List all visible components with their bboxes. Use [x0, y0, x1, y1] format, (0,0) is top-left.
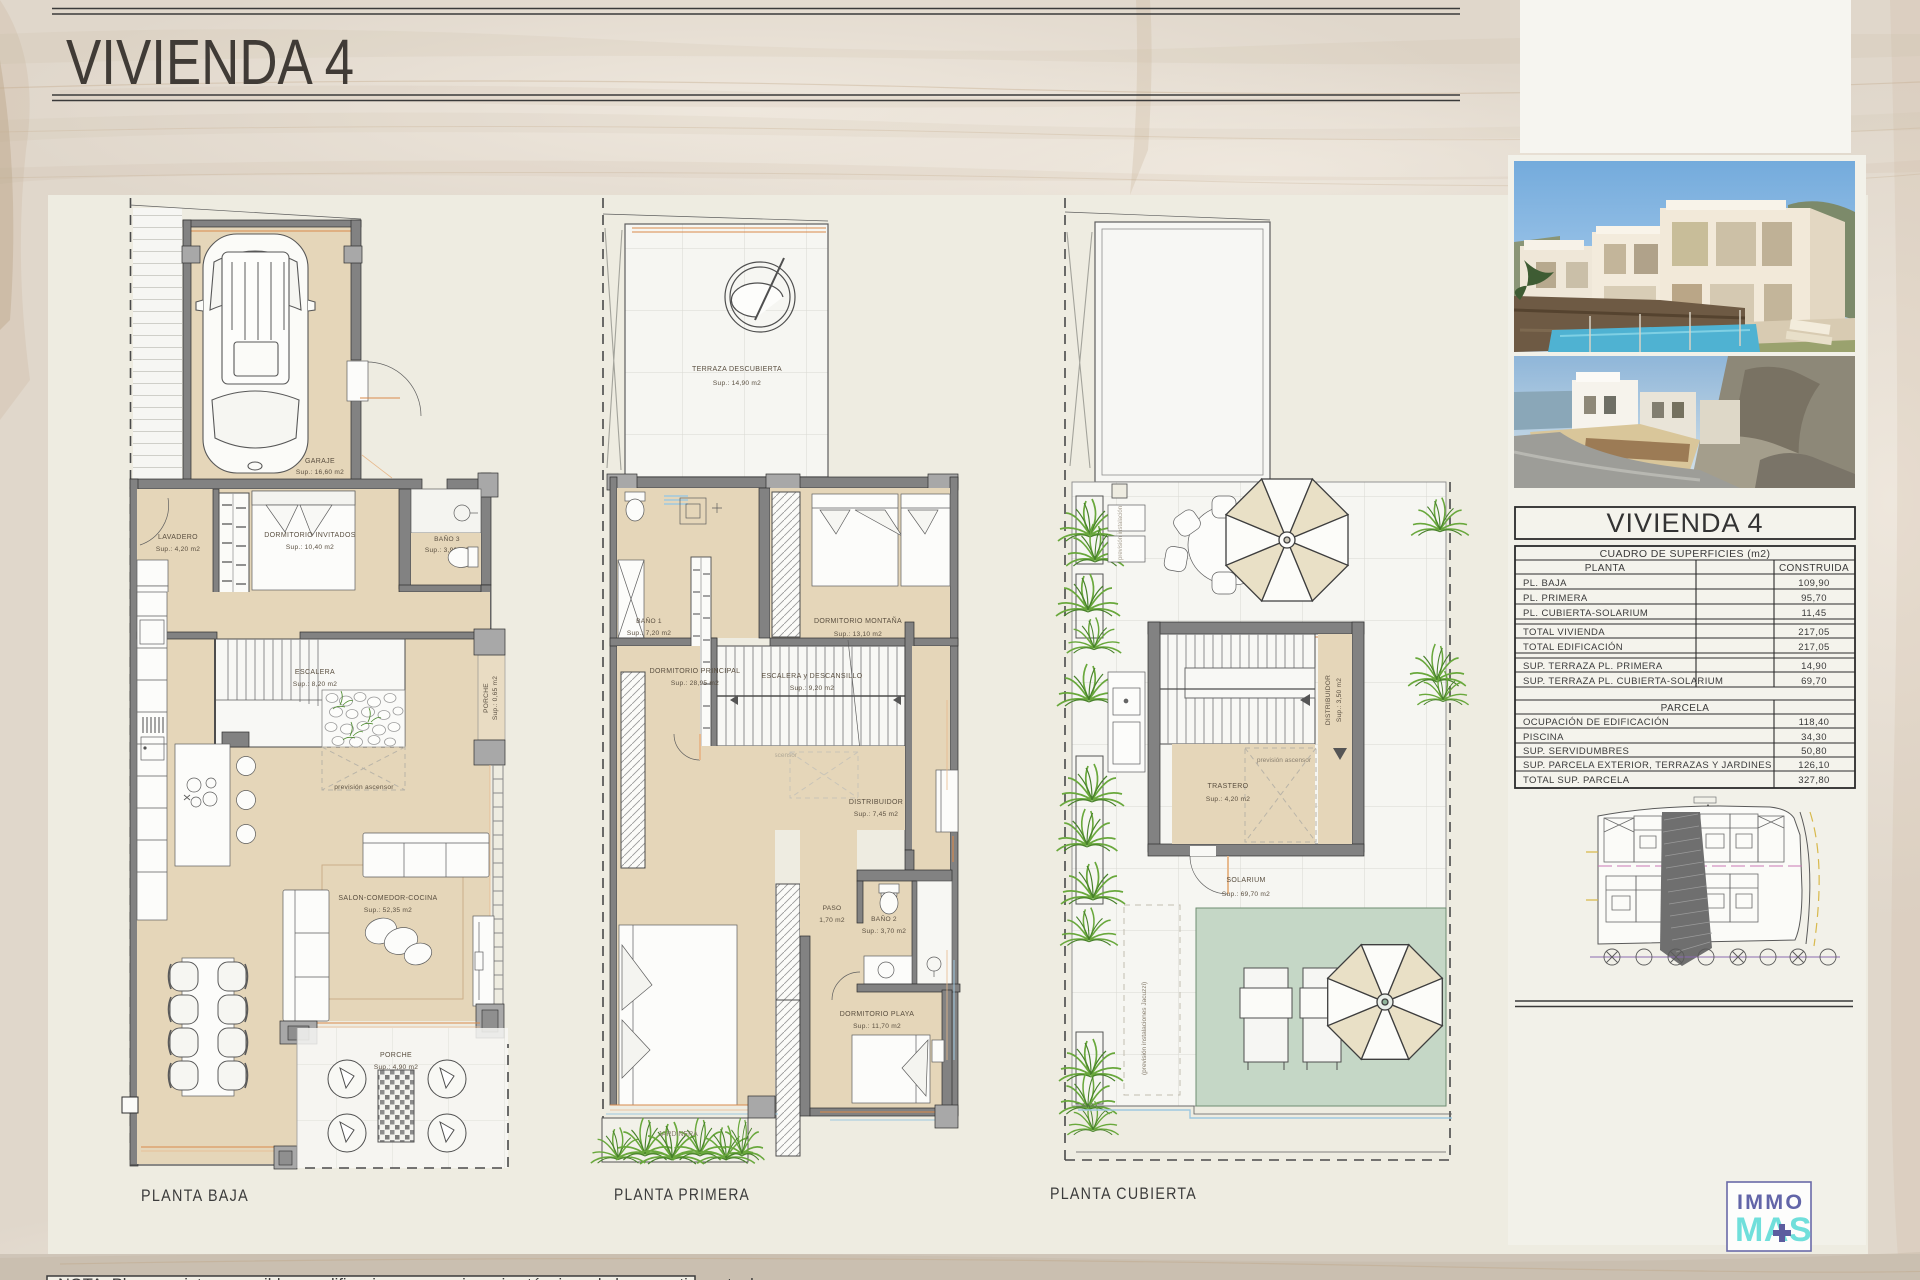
svg-text:Sup.: 3,70 m2: Sup.: 3,70 m2: [862, 928, 906, 935]
svg-text:DORMITORIO PRINCIPAL: DORMITORIO PRINCIPAL: [650, 668, 741, 675]
svg-text:PLANTA CUBIERTA: PLANTA CUBIERTA: [1050, 1184, 1197, 1203]
svg-text:50,80: 50,80: [1801, 746, 1827, 757]
svg-text:118,40: 118,40: [1799, 717, 1830, 728]
svg-text:Sup.: 16,60 m2: Sup.: 16,60 m2: [296, 469, 344, 476]
svg-text:SALON-COMEDOR-COCINA: SALON-COMEDOR-COCINA: [338, 895, 437, 902]
svg-text:PLANTA: PLANTA: [1585, 563, 1626, 574]
svg-text:Sup.: 4,20 m2: Sup.: 4,20 m2: [1206, 796, 1250, 803]
svg-text:LAVADERO: LAVADERO: [158, 534, 198, 541]
svg-text:Sup.: 69,70 m2: Sup.: 69,70 m2: [1222, 891, 1270, 898]
svg-text:34,30: 34,30: [1801, 732, 1827, 743]
svg-text:DISTRIBUIDOR: DISTRIBUIDOR: [849, 799, 903, 806]
svg-text:VIVIENDA 4: VIVIENDA 4: [1606, 508, 1763, 538]
svg-text:ESCALERA y DESCANSILLO: ESCALERA y DESCANSILLO: [761, 673, 862, 680]
svg-text:PASO: PASO: [823, 905, 842, 912]
svg-text:TOTAL EDIFICACIÓN: TOTAL EDIFICACIÓN: [1523, 642, 1623, 653]
svg-text:126,10: 126,10: [1798, 760, 1829, 771]
svg-text:BAÑO 1: BAÑO 1: [636, 616, 662, 625]
svg-text:DISTRIBUIDOR: DISTRIBUIDOR: [1325, 675, 1332, 725]
svg-text:Sup.: 7,45 m2: Sup.: 7,45 m2: [854, 811, 898, 818]
svg-text:109,90: 109,90: [1798, 578, 1829, 589]
svg-text:VIVIENDA 4: VIVIENDA 4: [66, 26, 354, 98]
svg-text:BAÑO 3: BAÑO 3: [434, 534, 460, 543]
svg-text:CUADRO DE SUPERFICIES (m2): CUADRO DE SUPERFICIES (m2): [1600, 548, 1771, 560]
svg-text:Sup.: 4,20 m2: Sup.: 4,20 m2: [156, 546, 200, 553]
svg-text:Sup.: 3,50 m2: Sup.: 3,50 m2: [1336, 678, 1343, 722]
svg-text:PORCHE: PORCHE: [483, 683, 490, 713]
svg-text:PLANTA PRIMERA: PLANTA PRIMERA: [614, 1185, 750, 1204]
svg-text:PL. BAJA: PL. BAJA: [1523, 578, 1567, 589]
svg-text:11,45: 11,45: [1801, 608, 1826, 619]
svg-text:TOTAL VIVIENDA: TOTAL VIVIENDA: [1523, 627, 1605, 638]
svg-text:PL. PRIMERA: PL. PRIMERA: [1523, 593, 1588, 604]
svg-text:69,70: 69,70: [1801, 676, 1827, 687]
svg-text:DORMITORIO PLAYA: DORMITORIO PLAYA: [840, 1011, 914, 1018]
svg-text:PISCINA: PISCINA: [1523, 732, 1564, 743]
svg-text:Sup.: 28,95 m2: Sup.: 28,95 m2: [671, 680, 719, 687]
svg-text:Sup.: 0,65 m2: Sup.: 0,65 m2: [492, 676, 499, 720]
svg-text:PORCHE: PORCHE: [380, 1052, 412, 1059]
svg-text:previsión ascensor: previsión ascensor: [1257, 757, 1312, 764]
svg-text:SUP. SERVIDUMBRES: SUP. SERVIDUMBRES: [1523, 746, 1629, 757]
svg-text:Sup.: 10,40 m2: Sup.: 10,40 m2: [286, 544, 334, 551]
svg-text:previsión instalación: previsión instalación: [1118, 506, 1124, 560]
svg-text:NOTA: Planos sujetos a posible: NOTA: Planos sujetos a posibles modifica…: [58, 1276, 754, 1280]
svg-text:TERRAZA DESCUBIERTA: TERRAZA DESCUBIERTA: [692, 366, 782, 373]
svg-text:SOLARIUM: SOLARIUM: [1226, 877, 1265, 884]
svg-text:ESCALERA: ESCALERA: [295, 669, 335, 676]
svg-text:14,90: 14,90: [1801, 661, 1827, 672]
svg-text:Sup.: 7,20 m2: Sup.: 7,20 m2: [627, 630, 671, 637]
svg-text:TOTAL SUP. PARCELA: TOTAL SUP. PARCELA: [1523, 775, 1630, 786]
svg-text:JARDINERA: JARDINERA: [658, 1131, 698, 1138]
svg-text:Sup.: 52,35 m2: Sup.: 52,35 m2: [364, 907, 412, 914]
svg-text:Sup.: 9,20 m2: Sup.: 9,20 m2: [790, 685, 834, 692]
svg-text:BAÑO 2: BAÑO 2: [871, 914, 897, 923]
svg-text:SUP. PARCELA EXTERIOR, TERRAZA: SUP. PARCELA EXTERIOR, TERRAZAS Y JARDIN…: [1523, 760, 1772, 771]
svg-text:Sup.: 13,10 m2: Sup.: 13,10 m2: [834, 631, 882, 638]
svg-text:CONSTRUIDA: CONSTRUIDA: [1779, 563, 1849, 574]
svg-text:PLANTA BAJA: PLANTA BAJA: [141, 1186, 249, 1205]
svg-text:Sup.: 11,70 m2: Sup.: 11,70 m2: [853, 1023, 901, 1030]
svg-text:TRASTERO: TRASTERO: [1208, 783, 1249, 790]
svg-text:SUP. TERRAZA PL. PRIMERA: SUP. TERRAZA PL. PRIMERA: [1523, 661, 1663, 672]
svg-text:1,70 m2: 1,70 m2: [819, 917, 845, 924]
svg-text:DORMITORIO INVITADOS: DORMITORIO INVITADOS: [264, 532, 356, 539]
svg-text:217,05: 217,05: [1798, 642, 1829, 653]
svg-text:OCUPACIÓN DE EDIFICACIÓN: OCUPACIÓN DE EDIFICACIÓN: [1523, 717, 1669, 728]
svg-text:Sup.: 14,90 m2: Sup.: 14,90 m2: [713, 380, 761, 387]
svg-text:327,80: 327,80: [1798, 775, 1829, 786]
svg-text:previsión ascensor: previsión ascensor: [334, 784, 394, 791]
svg-text:Sup.: 8,20 m2: Sup.: 8,20 m2: [293, 681, 337, 688]
svg-text:217,05: 217,05: [1798, 627, 1829, 638]
svg-text:GARAJE: GARAJE: [305, 458, 335, 465]
svg-text:95,70: 95,70: [1801, 593, 1827, 604]
svg-text:PL. CUBIERTA-SOLARIUM: PL. CUBIERTA-SOLARIUM: [1523, 608, 1648, 619]
svg-text:DORMITORIO MONTAÑA: DORMITORIO MONTAÑA: [814, 616, 902, 625]
svg-text:(previsión instalaciones Jacuz: (previsión instalaciones Jacuzzi): [1141, 982, 1148, 1075]
svg-text:SUP. TERRAZA PL. CUBIERTA-SOLA: SUP. TERRAZA PL. CUBIERTA-SOLARIUM: [1523, 676, 1723, 687]
svg-text:PARCELA: PARCELA: [1661, 703, 1710, 714]
